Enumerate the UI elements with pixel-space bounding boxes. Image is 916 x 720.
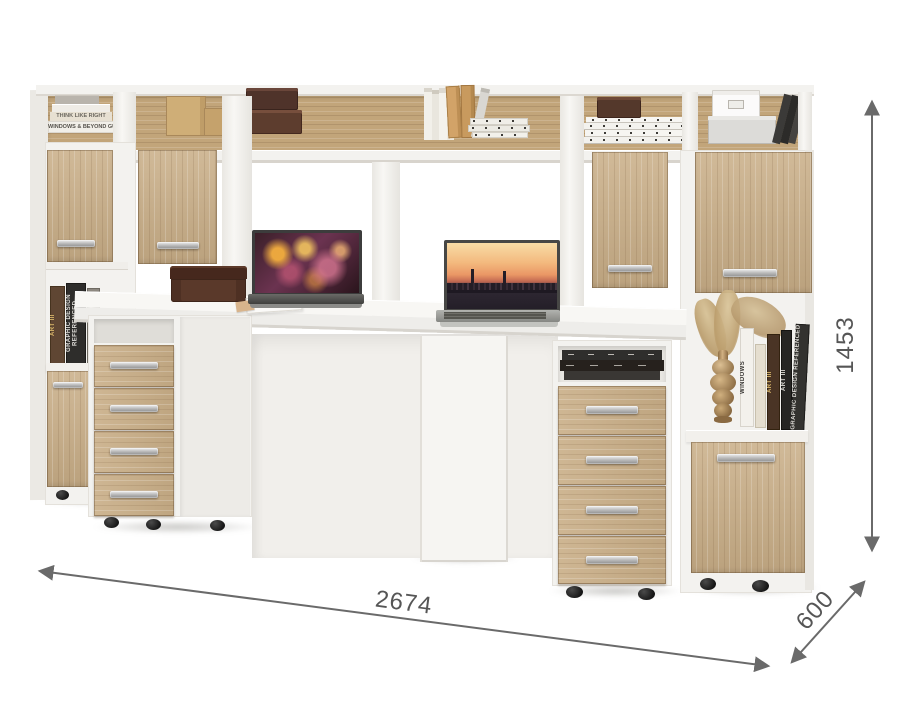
door-handle	[57, 240, 95, 247]
brown-box-small	[246, 88, 298, 110]
book-spine: GRAPHIC DESIGN REFERENCED	[790, 324, 810, 432]
door-handle	[717, 454, 775, 462]
under-desk-back-panel	[252, 334, 558, 558]
door-handle	[723, 269, 777, 277]
laptop-left-keyboard	[248, 294, 364, 304]
book-spine: ART III	[767, 334, 780, 430]
right-pedestal	[552, 340, 672, 600]
pedestal-foot	[210, 520, 225, 531]
height-dimension-label: 1453	[832, 316, 859, 373]
pedestal-foot	[146, 519, 161, 530]
drawer	[558, 536, 666, 584]
right-shelf-books: WINDOWS ART III ART III GRAPHIC DESIGN R…	[740, 322, 808, 432]
drawer	[94, 474, 174, 516]
stacked-dark-book	[562, 350, 662, 360]
hutch-post-right	[560, 96, 584, 332]
drawer-handle	[586, 406, 638, 414]
left-tower-shelf-line	[46, 262, 128, 269]
drawer	[94, 431, 174, 473]
drawer-handle	[586, 556, 638, 564]
laptop-right-base-edge	[440, 322, 558, 327]
binder	[585, 130, 689, 137]
book-spine: ART III	[50, 286, 65, 364]
leather-box	[170, 266, 247, 302]
right-tower-top-divider	[682, 92, 698, 152]
tower-foot	[752, 580, 769, 592]
leather-box-body	[171, 279, 246, 302]
drawer	[558, 436, 666, 485]
wooden-organizer	[166, 96, 206, 136]
book-spine	[468, 125, 530, 132]
door-handle	[608, 265, 652, 272]
binder	[584, 123, 690, 130]
pedestal-open-nook	[558, 346, 666, 382]
book-spine: THINK LIKE RIGHT	[50, 112, 112, 121]
product-render-stage: THINK LIKE RIGHT WINDOWS & BEYOND GUIDE	[0, 0, 916, 720]
binder	[584, 137, 690, 144]
left-tower-lower-door	[47, 371, 90, 487]
book-spine	[470, 118, 528, 125]
drawer	[558, 486, 666, 535]
key-rows	[444, 312, 546, 319]
laptop-right-screen	[444, 240, 560, 312]
book-title: THINK LIKE RIGHT	[50, 112, 112, 121]
door-handle	[157, 242, 199, 249]
book-spine	[755, 344, 766, 428]
grey-box	[708, 116, 776, 144]
vase-base	[714, 416, 732, 423]
pedestal-foot	[566, 586, 583, 598]
left-hutch-door	[138, 150, 217, 264]
book-stack-left-top: THINK LIKE RIGHT WINDOWS & BEYOND GUIDE	[48, 95, 118, 133]
book-spine	[52, 104, 110, 112]
book-title: WINDOWS	[740, 328, 754, 427]
pedestal-open-nook	[94, 319, 174, 343]
right-tower-shelf-board	[686, 430, 808, 442]
drawer	[558, 386, 666, 435]
book-spine	[472, 132, 528, 138]
drawer-handle	[110, 491, 158, 498]
drawer-handle	[110, 405, 158, 412]
white-box	[712, 90, 760, 118]
laptop-left	[248, 230, 366, 310]
vase	[706, 350, 740, 430]
drawer	[94, 345, 174, 387]
bridge-deck	[447, 290, 557, 293]
book-spine	[424, 88, 432, 140]
binder-stack	[584, 117, 690, 144]
tower-foot	[700, 578, 716, 590]
stacked-dark-book	[560, 360, 664, 371]
book-spine: WINDOWS & BEYOND GUIDE	[48, 121, 116, 133]
door-handle	[53, 382, 83, 388]
right-tower-top-edge	[798, 92, 812, 152]
pedestal-foot	[638, 588, 655, 600]
laptop-left-base-edge	[250, 304, 362, 308]
book-title: GRAPHIC DESIGN REFERENCED	[790, 324, 810, 432]
left-tower-upper-door	[47, 150, 113, 262]
desk-center-leg	[420, 336, 508, 562]
left-pedestal	[88, 315, 252, 533]
book-title: ART III	[767, 334, 780, 430]
right-tower-lower-door	[691, 442, 805, 573]
laptop-right-keyboard	[436, 310, 560, 322]
drawer-handle	[110, 362, 158, 369]
drawer-handle	[586, 456, 638, 464]
book-spine	[55, 95, 99, 104]
leather-box-lid	[170, 266, 247, 279]
box-label	[728, 100, 744, 109]
book-spine	[432, 90, 439, 140]
book-spine: WINDOWS	[740, 328, 754, 427]
right-hutch-door	[592, 152, 668, 288]
book-title: ART III	[50, 286, 65, 364]
horizontal-book-stack	[468, 118, 532, 140]
tower-foot	[56, 490, 69, 500]
drawer-handle	[586, 506, 638, 514]
brown-box-top	[597, 97, 641, 118]
drawer	[94, 388, 174, 430]
laptop-left-screen	[252, 230, 362, 296]
pedestal-foot	[104, 517, 119, 528]
book-title: WINDOWS & BEYOND GUIDE	[48, 121, 116, 133]
width-dimension-label: 2674	[374, 585, 434, 619]
right-tower-upper-door	[695, 152, 812, 293]
laptop-right	[436, 240, 562, 330]
pedestal-side-panel	[180, 317, 250, 517]
drawer-handle	[110, 448, 158, 455]
stacked-dark-book	[564, 371, 660, 380]
